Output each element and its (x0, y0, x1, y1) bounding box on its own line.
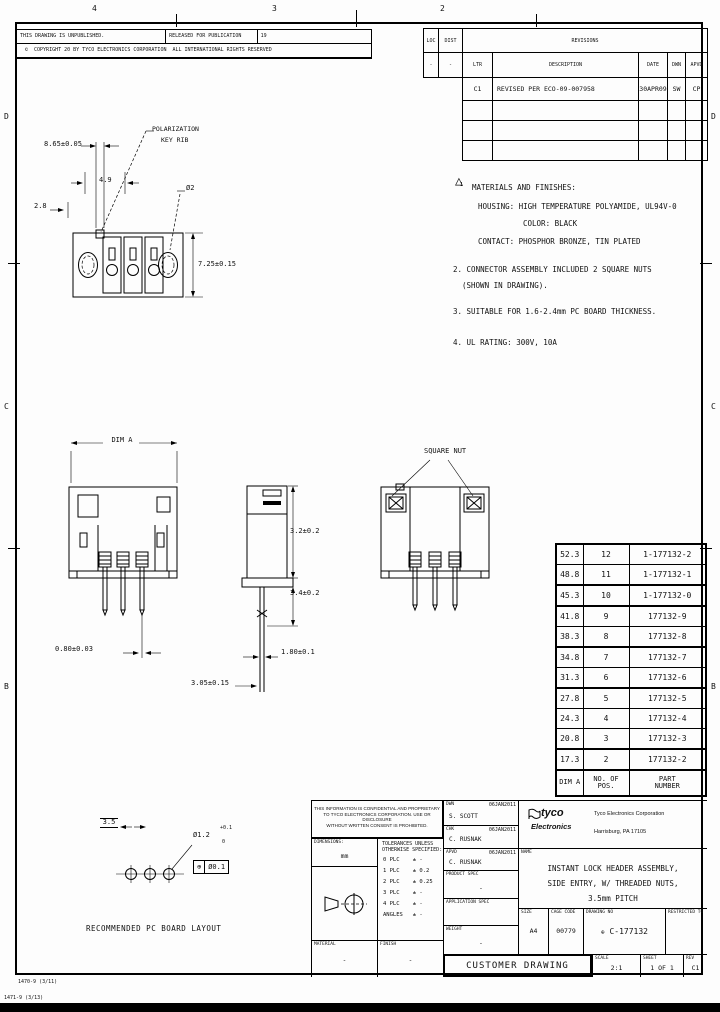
dim-pin-length: 3.05±0.15 (191, 680, 229, 688)
square-nut-callout: SQUARE NUT (424, 448, 466, 456)
dimensions-cell: DIMENSIONS: mm (311, 838, 377, 866)
form-number-outer: 1471-9 (3/13) (4, 996, 43, 1002)
gdt-position-frame: ⊕ Ø0.1 (193, 860, 229, 874)
revision-row-empty (424, 141, 708, 161)
rev-label: REV (686, 956, 694, 961)
cage-code-cell: CAGE CODE 00779 (548, 908, 583, 954)
drawn-by-cell: DWN 06JAN2011 S. SCOTT (443, 800, 518, 825)
tolerance-row: 2 PLC ± 0.25 (378, 877, 443, 888)
dimensions-label: DIMENSIONS: (314, 840, 344, 845)
weight-cell: WEIGHT - (443, 925, 518, 954)
legal-line2: TO TYCO ELECTRONICS CORPORATION. USE OR … (312, 812, 442, 823)
rev-description: REVISED PER ECO-09-007958 (493, 78, 639, 101)
scan-edge-bar (0, 1003, 720, 1012)
tolerance-list: 0 PLC ± -1 PLC ± 0.22 PLC ± 0.253 PLC ± … (378, 855, 443, 921)
part-table-row: 52.3121-177132-2 (556, 544, 706, 565)
product-spec-cell: PRODUCT SPEC - (443, 870, 518, 898)
tolerance-row: 1 PLC ± 0.2 (378, 866, 443, 877)
dim-side-a: 3.2±0.2 (290, 528, 320, 536)
material-label: MATERIAL (314, 942, 336, 947)
pcb-layout-caption: RECOMMENDED PC BOARD LAYOUT (86, 925, 221, 933)
note-3: 3. SUITABLE FOR 1.6-2.4mm PC BOARD THICK… (453, 308, 656, 316)
form-number-inner: 1470-9 (3/11) (18, 980, 57, 986)
unpublished-note: THIS DRAWING IS UNPUBLISHED. (17, 30, 166, 43)
note-1: MATERIALS AND FINISHES: (472, 184, 576, 192)
third-angle-projection-icon (322, 889, 368, 919)
finish-label: FINISH (380, 942, 396, 947)
scale-cell: SCALE 2:1 (592, 954, 640, 977)
rev-dwn: SW (668, 78, 686, 101)
part-table-row: 20.83177132-3 (556, 729, 706, 750)
legal-line1: THIS INFORMATION IS CONFIDENTIAL AND PRO… (312, 806, 442, 812)
pcb-hole-tol-plus: +0.1 (220, 826, 232, 832)
dim-side-b: 3.4±0.2 (290, 590, 320, 598)
sheet-label: SHEET (643, 956, 657, 961)
tyco-logo-text: tyco (541, 807, 564, 819)
dim-a-label: DIM A (106, 437, 138, 445)
rev-col-ltr: LTR (463, 53, 493, 78)
col-no-of-pos: NO. OF POS. (583, 770, 629, 796)
part-table-row: 31.36177132-6 (556, 668, 706, 689)
cage-code-label: CAGE CODE (551, 910, 575, 915)
zone-right-d: D (711, 112, 716, 121)
zone-top-2: 2 (440, 4, 445, 13)
customer-drawing-banner: CUSTOMER DRAWING (443, 954, 592, 977)
zone-left-d: D (4, 112, 9, 121)
company-location: Harrisburg, PA 17105 (594, 829, 646, 835)
border-tick (8, 548, 20, 549)
polarization-callout-line2: KEY RIB (161, 137, 188, 144)
rev-value: C1 (684, 964, 707, 972)
restricted-label: RESTRICTED TO (668, 910, 703, 915)
application-spec-label: APPLICATION SPEC (446, 900, 489, 905)
apvd-name: C. RUSNAK (449, 860, 482, 867)
note-2: 2. CONNECTOR ASSEMBLY INCLUDED 2 SQUARE … (453, 266, 652, 274)
released-date: 19 (258, 30, 371, 43)
customer-drawing-text: CUSTOMER DRAWING (466, 961, 569, 971)
finish-cell: FINISH - (377, 940, 443, 977)
note-1b: COLOR: BLACK (523, 220, 577, 228)
product-spec-label: PRODUCT SPEC (446, 872, 479, 877)
revision-row-empty (424, 101, 708, 121)
border-tick (700, 263, 712, 264)
title-cell: NAME INSTANT LOCK HEADER ASSEMBLY, SIDE … (518, 848, 707, 908)
restricted-to-cell: RESTRICTED TO (665, 908, 707, 954)
dim-top-height: 7.25±0.15 (198, 261, 236, 269)
material-value: - (312, 956, 377, 964)
dim-top-side: 2.8 (34, 203, 47, 211)
legal-notice: THIS INFORMATION IS CONFIDENTIAL AND PRO… (311, 800, 443, 838)
rev-ltr: C1 (463, 78, 493, 101)
tyco-flag-icon (527, 809, 541, 821)
rev-cell: REV C1 (683, 954, 707, 977)
dim-top-width: 8.65±0.05 (44, 141, 82, 149)
zone-left-b: B (4, 682, 9, 691)
position-tolerance-icon: ⊕ (194, 861, 205, 873)
electronics-logo-text: Electronics (531, 823, 571, 831)
copyright-text: COPYRIGHT 20 BY TYCO ELECTRONICS CORPORA… (34, 47, 166, 53)
company-cell: tyco Electronics Tyco Electronics Corpor… (518, 800, 707, 848)
zone-top-3: 3 (272, 4, 277, 13)
zone-right-b: B (711, 682, 716, 691)
zone-left-c: C (4, 402, 9, 411)
revision-flag-number: 1 (460, 183, 463, 189)
tolerances-cell: TOLERANCES UNLESS OTHERWISE SPECIFIED: 0… (377, 838, 443, 940)
drawing-no-cell: DRAWING NO ⊕ C-177132 (583, 908, 665, 954)
name-label: NAME (521, 850, 532, 855)
cage-code-value: 00779 (549, 927, 583, 935)
rev-col-date: DATE (639, 53, 668, 78)
note-1c: CONTACT: PHOSPHOR BRONZE, TIN PLATED (478, 238, 641, 246)
product-spec-value: - (444, 884, 518, 892)
copyright-row: ©COPYRIGHT 20 BY TYCO ELECTRONICS CORPOR… (16, 44, 372, 59)
note-4: 4. UL RATING: 300V, 10A (453, 339, 557, 347)
rev-col-dwn: DWN (668, 53, 686, 78)
dwn-label: DWN (446, 802, 454, 807)
rev-dist-value: - (439, 53, 463, 78)
dwn-name: S. SCOTT (449, 814, 478, 821)
zone-top-4: 4 (92, 4, 97, 13)
part-table-row: 34.87177132-7 (556, 647, 706, 668)
weight-label: WEIGHT (446, 927, 462, 932)
checked-by-cell: CHK 06JAN2011 C. RUSNAK (443, 825, 518, 848)
part-table-row: 45.3101-177132-0 (556, 585, 706, 606)
revisions-title: REVISIONS (463, 29, 708, 53)
chk-name: C. RUSNAK (449, 837, 482, 844)
dwn-date: 06JAN2011 (489, 803, 516, 809)
dim-top-inner: 4.9 (99, 177, 112, 185)
part-table-row: 24.34177132-4 (556, 709, 706, 729)
part-table-header-row: DIM A NO. OF POS. PART NUMBER (556, 770, 706, 796)
scale-label: SCALE (595, 956, 609, 961)
dim-hole-dia: Ø2 (186, 185, 194, 193)
dimensions-unit: mm (312, 852, 377, 860)
apvd-date: 06JAN2011 (489, 851, 516, 857)
pcb-hole-tol-minus: 0 (222, 840, 225, 846)
drawing-title-line2: SIDE ENTRY, W/ THREADED NUTS, (519, 876, 707, 891)
apvd-label: APVD (446, 850, 457, 855)
part-number-table: 52.3121-177132-248.8111-177132-145.3101-… (555, 543, 707, 797)
material-cell: MATERIAL - (311, 940, 377, 977)
border-tick (176, 14, 177, 27)
copyright-icon: © (25, 47, 28, 53)
tolerance-row: 4 PLC ± - (378, 899, 443, 910)
dim-pin-square: 0.80±0.03 (55, 646, 93, 654)
zone-right-c: C (711, 402, 716, 411)
rev-date: 30APR09 (639, 78, 668, 101)
application-spec-cell: APPLICATION SPEC (443, 898, 518, 925)
border-tick (356, 10, 357, 27)
registered-icon: ⊕ (601, 929, 605, 936)
rev-loc-header: LOC (424, 29, 439, 53)
chk-label: CHK (446, 827, 454, 832)
rev-dist-header: DIST (439, 29, 463, 53)
drawing-no-label: DRAWING NO (586, 910, 613, 915)
company-name: Tyco Electronics Corporation (594, 811, 664, 817)
revisions-table: LOC DIST REVISIONS - - LTR DESCRIPTION D… (423, 28, 708, 161)
part-table-row: 48.8111-177132-1 (556, 565, 706, 586)
tolerance-header-2: OTHERWISE SPECIFIED: (382, 847, 443, 853)
border-tick (536, 14, 537, 27)
part-table-row: 27.85177132-5 (556, 688, 706, 709)
drawing-sheet: 4 3 2 D C B D C B THIS DRAWING IS UNPUBL… (0, 0, 720, 1012)
weight-value: - (444, 939, 518, 947)
drawing-title-line3: 3.5mm PITCH (519, 891, 707, 906)
tolerance-row: ANGLES ± - (378, 910, 443, 921)
rev-col-description: DESCRIPTION (493, 53, 639, 78)
sheet-cell: SHEET 1 OF 1 (640, 954, 683, 977)
part-table-rows: 52.3121-177132-248.8111-177132-145.3101-… (556, 544, 706, 770)
part-table-row: 41.89177132-9 (556, 606, 706, 627)
chk-date: 06JAN2011 (489, 828, 516, 834)
rights-text: ALL INTERNATIONAL RIGHTS RESERVED (172, 47, 271, 53)
approved-by-cell: APVD 06JAN2011 C. RUSNAK (443, 848, 518, 870)
drawing-no-value: C-177132 (609, 927, 648, 936)
copyright-strip: THIS DRAWING IS UNPUBLISHED. RELEASED FO… (16, 29, 372, 59)
rev-loc-value: - (424, 53, 439, 78)
finish-value: - (378, 956, 443, 964)
rev-col-apvd: APVD (686, 53, 708, 78)
revision-row-empty (424, 121, 708, 141)
part-table-row: 38.38177132-8 (556, 627, 706, 648)
projection-cell (311, 866, 377, 940)
legal-line3: WITHOUT WRITTEN CONSENT IS PROHIBITED. (312, 823, 442, 829)
sheet-value: 1 OF 1 (641, 964, 683, 972)
dim-pcb-hole: Ø1.2 (193, 832, 210, 840)
note-1a: HOUSING: HIGH TEMPERATURE POLYAMIDE, UL9… (478, 203, 677, 211)
tolerance-row: 3 PLC ± - (378, 888, 443, 899)
size-value: A4 (519, 927, 548, 935)
part-table-row: 17.32177132-2 (556, 749, 706, 770)
note-2a: (SHOWN IN DRAWING). (462, 282, 548, 290)
col-dim-a: DIM A (556, 770, 583, 796)
size-label: SIZE (521, 910, 532, 915)
revision-row: C1 REVISED PER ECO-09-007958 30APR09 SW … (424, 78, 708, 101)
polarization-callout-line1: POLARIZATION (152, 126, 199, 133)
side-view-drawing (185, 430, 320, 700)
position-tolerance-value: Ø0.1 (205, 861, 228, 873)
drawing-title-line1: INSTANT LOCK HEADER ASSEMBLY, (519, 861, 707, 876)
tolerance-row: 0 PLC ± - (378, 855, 443, 866)
rev-apvd: CP (686, 78, 708, 101)
dim-pin-width: 1.80±0.1 (281, 649, 315, 657)
released-note: RELEASED FOR PUBLICATION (166, 30, 258, 43)
col-part-number: PART NUMBER (629, 770, 706, 796)
scale-value: 2:1 (593, 964, 640, 972)
size-cell: SIZE A4 (518, 908, 548, 954)
dim-pcb-pitch: 3.5 (100, 818, 118, 828)
